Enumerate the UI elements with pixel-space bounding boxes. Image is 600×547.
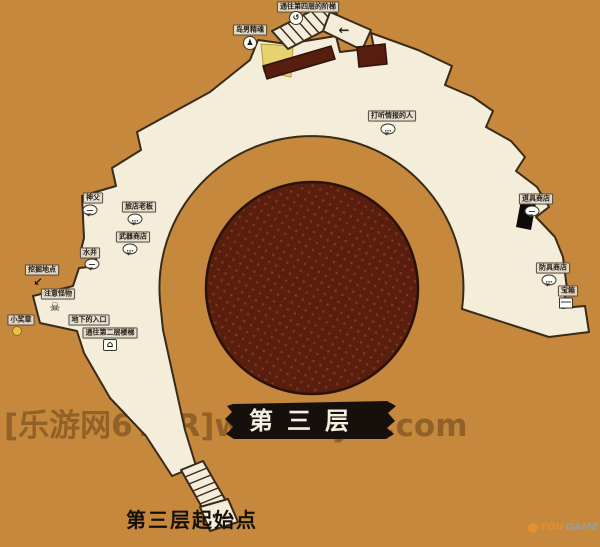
logo-prefix: YOU	[540, 522, 564, 533]
bubble-icon: …	[128, 214, 143, 225]
bubble-icon: …	[123, 244, 138, 255]
map-markers: 通往第四层的阶梯↺岛男精魂♟打听情报的人…神父—旅店老板…武器商店…水井—挖掘地…	[0, 0, 600, 547]
logo-icon	[528, 523, 538, 533]
underground-entrance-label: 地下的入口	[69, 315, 110, 326]
bubble-icon: …	[381, 124, 396, 135]
site-logo: YOU GAME	[528, 522, 598, 533]
house-icon: ⌂	[103, 339, 117, 351]
monster-warning-label: 注意怪物	[41, 289, 75, 300]
treasure-chest-label: 宝箱	[558, 286, 578, 297]
npc-priest-label: 神父	[83, 193, 103, 204]
armor-shop-label: 防具商店	[536, 263, 570, 274]
stairs-to-fourth-floor-label: 通往第四层的阶梯	[277, 2, 339, 13]
skull-icon: ☠	[50, 301, 61, 313]
person-icon: ♟	[243, 36, 257, 50]
start-point-label: 第三层起始点	[126, 504, 258, 533]
stairs-to-second-floor-label: 通往第二层楼梯	[83, 328, 138, 339]
npc-innkeeper-label: 旅店老板	[122, 202, 156, 213]
arrow-left-icon: ←	[339, 25, 350, 38]
npc-info-label: 打听情报的人	[368, 111, 416, 122]
npc-weapon-shop-label: 武器商店	[116, 232, 150, 243]
small-medal-label: 小奖章	[8, 315, 35, 326]
item-shop-label: 道具商店	[519, 194, 553, 205]
island-spirit-label: 岛男精魂	[233, 25, 267, 36]
bubble-dash-icon: —	[83, 205, 98, 216]
spiral-icon: ↺	[289, 11, 303, 25]
logo-suffix: GAME	[566, 522, 599, 533]
box-icon	[559, 298, 573, 309]
bubble-dash-icon: —	[525, 206, 540, 217]
bubble-dash-icon: —	[85, 259, 100, 270]
bubble-icon: …	[542, 275, 557, 286]
dig-spot-label: 挖掘地点	[25, 265, 59, 276]
arrow-icon: ↙	[33, 277, 42, 288]
coin-icon	[12, 326, 22, 336]
well-label: 水井	[80, 248, 100, 259]
map-page: [乐游网6YER]www.6yer.com 第三层 通往第四	[0, 0, 600, 547]
